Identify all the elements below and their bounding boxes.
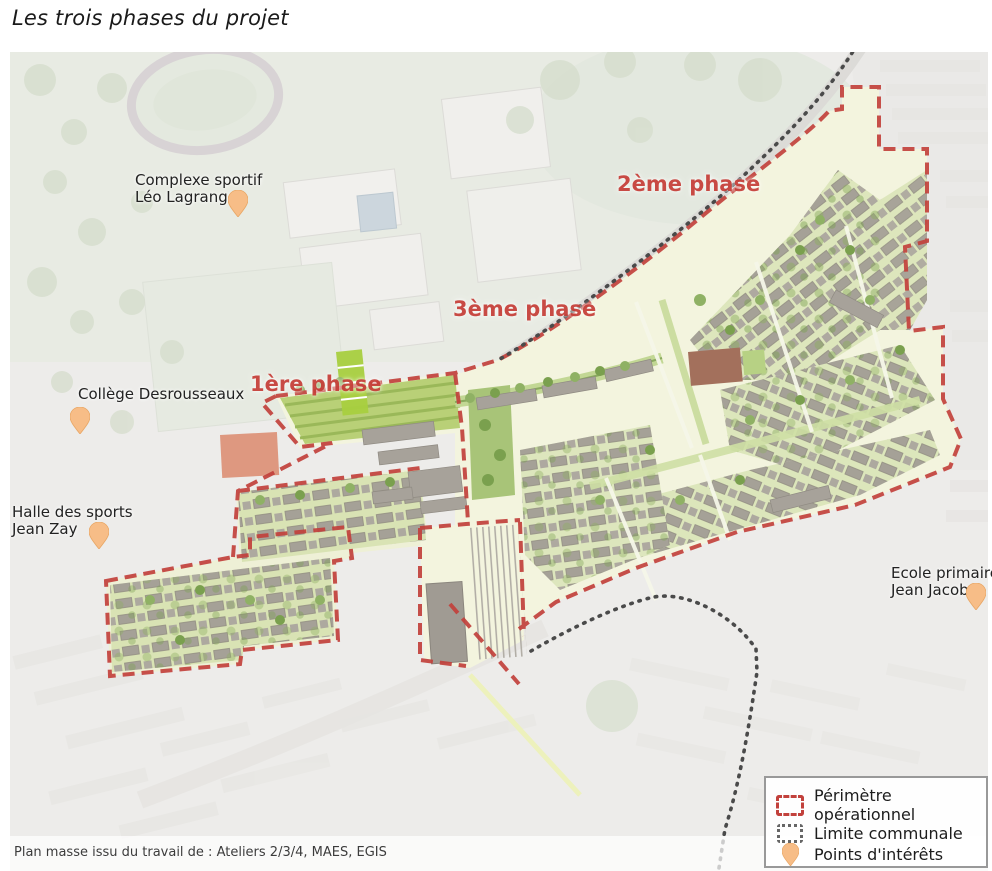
poi-label-line: Complexe sportif <box>135 172 262 189</box>
map-legend: Périmètre opérationnel Limite communale … <box>764 776 988 868</box>
legend-label: Périmètre opérationnel <box>814 786 976 824</box>
poi-label-line: Jean Zay <box>12 521 133 538</box>
phase-2-label: 2ème phase <box>617 172 760 196</box>
poi-pin-icon <box>89 522 109 549</box>
phase-1-label: 1ère phase <box>250 372 382 396</box>
poi-label-college-desrousseaux: Collège Desrousseaux <box>78 386 244 403</box>
poi-label-line: Ecole primaire <box>891 565 992 582</box>
poi-pin-icon <box>70 407 90 434</box>
legend-row-limit: Limite communale <box>776 824 976 843</box>
poi-pin-icon <box>782 843 799 866</box>
communal-limit-dotted-icon <box>777 824 803 843</box>
masterplan-map <box>0 0 992 871</box>
legend-row-perimeter: Périmètre opérationnel <box>776 786 976 824</box>
poi-label-line: Collège Desrousseaux <box>78 386 244 403</box>
phase-3-label: 3ème phase <box>453 297 596 321</box>
source-note: Plan masse issu du travail de : Ateliers… <box>14 845 387 860</box>
poi-label-halle-des-sports: Halle des sports Jean Zay <box>12 504 133 539</box>
poi-pin-icon <box>228 190 248 217</box>
legend-row-poi: Points d'intérêts <box>776 843 976 866</box>
poi-pin-icon <box>966 583 986 610</box>
legend-label: Points d'intérêts <box>814 845 943 864</box>
page-title: Les trois phases du projet <box>12 6 289 30</box>
legend-label: Limite communale <box>814 824 963 843</box>
poi-label-line: Halle des sports <box>12 504 133 521</box>
perimeter-dashed-icon <box>776 795 804 816</box>
project-phases-map-page: Les trois phases du projet 1ère phase 2è… <box>0 0 992 871</box>
